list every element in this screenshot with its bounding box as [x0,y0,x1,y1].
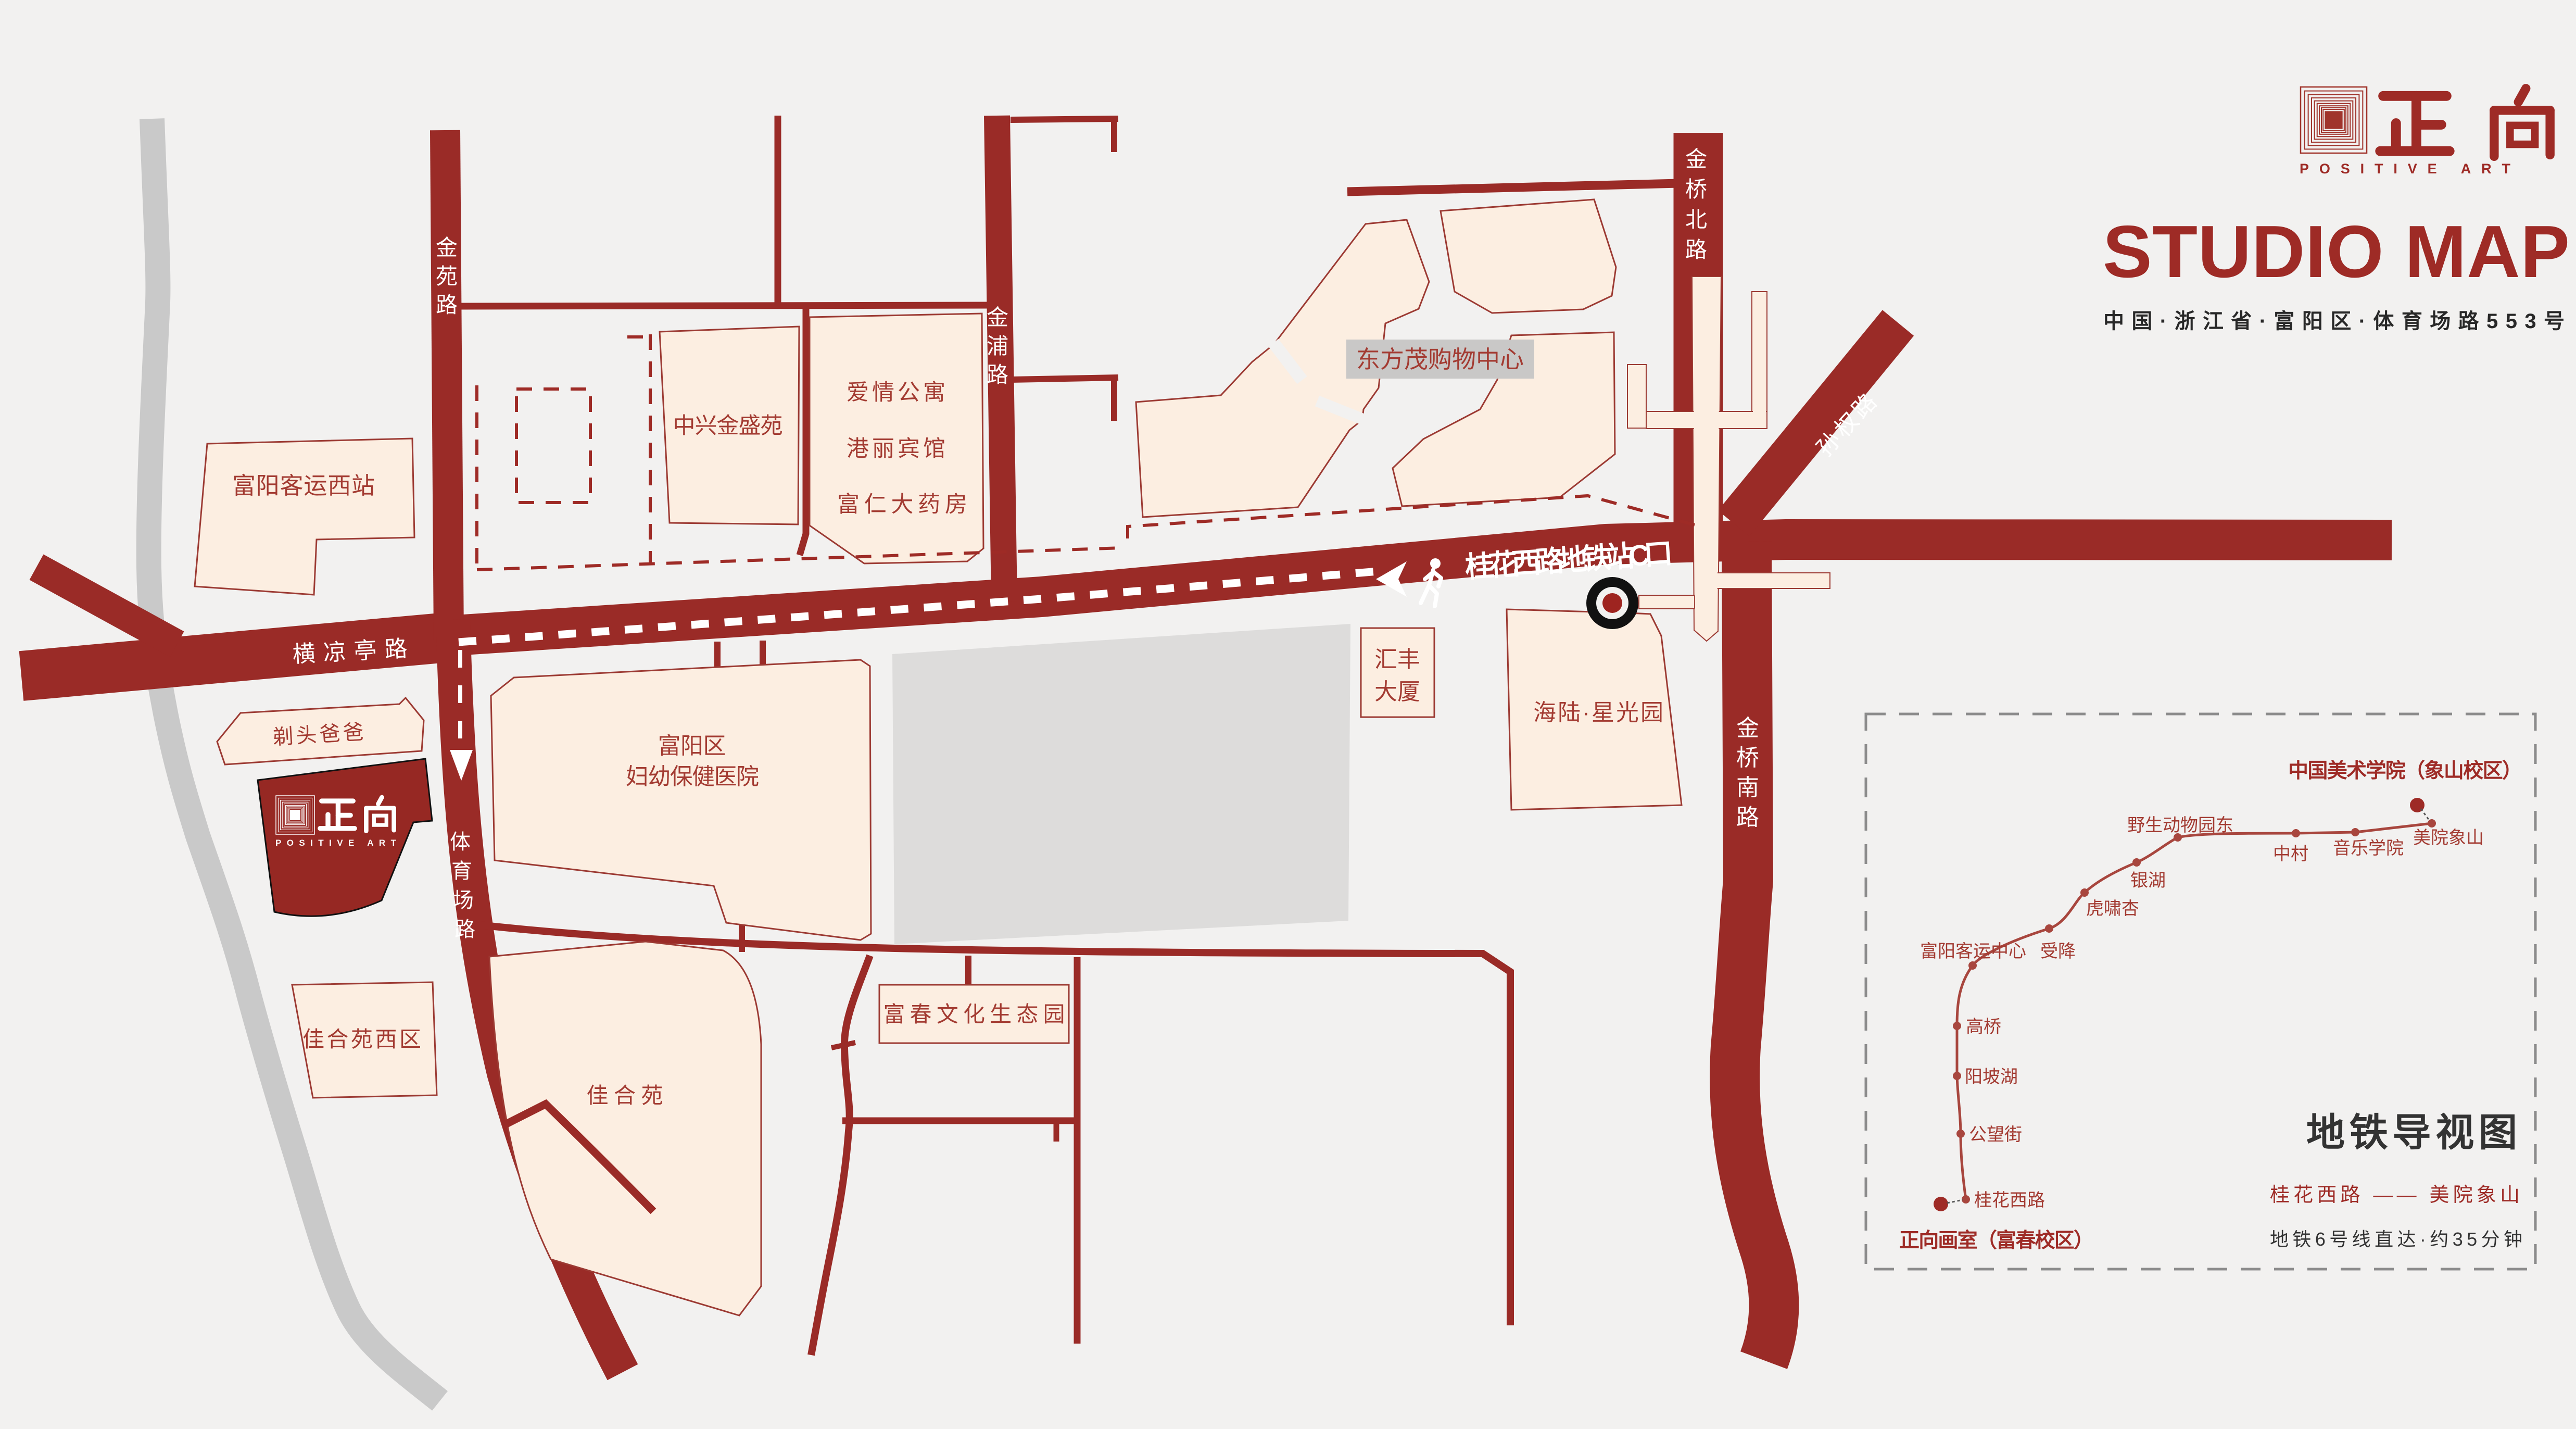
svg-text:野生动物园东: 野生动物园东 [2127,816,2233,835]
svg-text:富阳客运中心: 富阳客运中心 [1920,942,2026,961]
svg-text:中村: 中村 [2273,844,2308,864]
svg-text:北: 北 [1685,207,1707,232]
svg-text:佳合苑: 佳合苑 [587,1083,663,1108]
svg-text:音乐学院: 音乐学院 [2333,838,2404,858]
svg-text:南: 南 [1736,775,1759,800]
svg-text:路: 路 [1736,805,1759,830]
svg-text:桥: 桥 [1736,745,1759,771]
svg-text:东方茂购物中心: 东方茂购物中心 [1356,346,1524,373]
svg-text:虎啸杏: 虎啸杏 [2086,899,2139,919]
svg-text:美院象山: 美院象山 [2413,828,2484,848]
svg-text:中国美术学院（象山校区）: 中国美术学院（象山校区） [2288,760,2522,782]
svg-text:地铁导视图: 地铁导视图 [2306,1111,2522,1154]
svg-text:路: 路 [436,293,458,317]
svg-text:金: 金 [436,235,458,260]
svg-text:体: 体 [450,831,471,854]
svg-text:金: 金 [987,305,1008,330]
svg-text:场: 场 [453,889,474,912]
svg-text:公望街: 公望街 [1969,1125,2022,1145]
svg-text:阳坡湖: 阳坡湖 [1965,1067,2018,1087]
svg-text:高桥: 高桥 [1966,1017,2001,1037]
svg-text:路: 路 [1685,237,1707,262]
svg-text:佳合苑西区: 佳合苑西区 [302,1027,421,1051]
svg-text:桥: 桥 [1685,177,1707,202]
svg-text:汇丰: 汇丰 [1374,647,1420,672]
svg-text:正向画室（富春校区）: 正向画室（富春校区） [1899,1230,2094,1252]
svg-text:路: 路 [454,918,475,941]
svg-text:富仁大药房: 富仁大药房 [837,492,967,517]
svg-text:浦: 浦 [987,334,1008,358]
svg-text:海陆·星光园: 海陆·星光园 [1533,700,1663,725]
svg-text:受降: 受降 [2040,942,2076,961]
svg-text:富阳区: 富阳区 [658,733,726,759]
svg-text:育: 育 [451,860,472,883]
svg-text:中兴金盛苑: 中兴金盛苑 [673,413,783,438]
svg-text:富阳客运西站: 富阳客运西站 [232,472,375,499]
svg-text:苑: 苑 [436,264,458,289]
svg-text:路: 路 [987,362,1008,387]
svg-text:金: 金 [1685,147,1707,171]
svg-text:大厦: 大厦 [1374,679,1420,705]
svg-text:桂花西路: 桂花西路 [1974,1190,2045,1210]
svg-text:富春文化生态园: 富春文化生态园 [883,1002,1065,1026]
svg-text:妇幼保健医院: 妇幼保健医院 [626,764,759,789]
svg-text:金: 金 [1736,716,1759,741]
svg-text:STUDIO MAP: STUDIO MAP [2103,210,2570,293]
svg-text:银湖: 银湖 [2130,871,2166,891]
